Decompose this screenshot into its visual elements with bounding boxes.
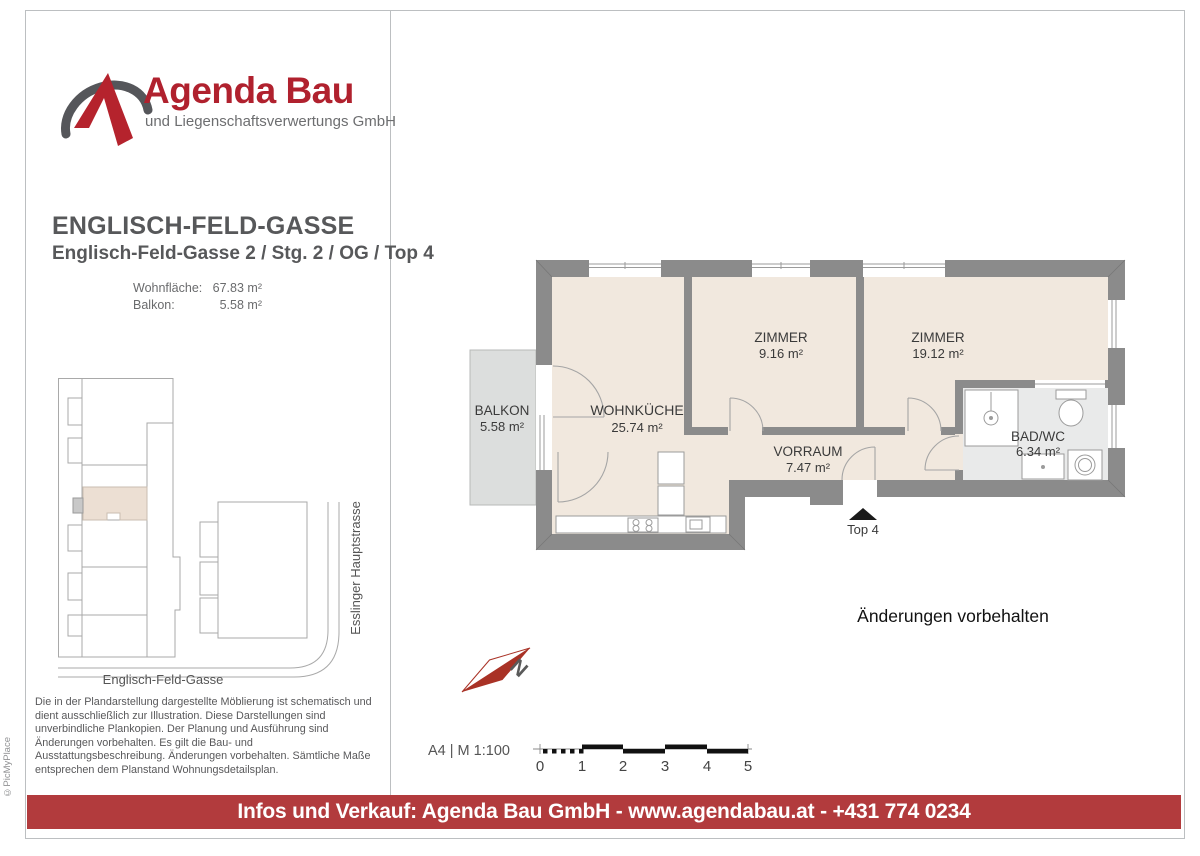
scale-tick: 3 — [661, 758, 669, 775]
site-connector — [147, 423, 180, 657]
room-area: 7.47 m² — [786, 460, 831, 475]
scale-tick: 5 — [744, 758, 752, 775]
room-label: VORRAUM — [773, 444, 842, 459]
room-area: 25.74 m² — [611, 420, 663, 435]
footer-bar: Infos und Verkauf: Agenda Bau GmbH - www… — [27, 795, 1181, 829]
site-road-outer — [58, 502, 339, 677]
floor-plan: BALKON 5.58 m² WOHNKÜCHE 25.74 m² ZIMMER… — [440, 250, 1140, 560]
brand-name: Agenda Bau — [143, 70, 354, 112]
entrance-arrow-icon — [849, 508, 877, 520]
kitchen-cabinet — [658, 452, 684, 484]
area-row-value: 67.83 m² — [192, 281, 262, 298]
street-label-bottom: Englisch-Feld-Gasse — [103, 672, 224, 687]
stove — [628, 518, 658, 532]
site-unit-balcony — [73, 498, 83, 513]
kitchen-cabinet — [658, 486, 684, 515]
toilet-tank — [1056, 390, 1086, 399]
scale-tick: 2 — [619, 758, 627, 775]
room-label: WOHNKÜCHE — [590, 401, 683, 418]
site-plan: Englisch-Feld-Gasse Esslinger Hauptstras… — [58, 378, 390, 690]
room-area: 6.34 m² — [1016, 444, 1061, 459]
site-road-inner — [58, 502, 328, 668]
room-label: BAD/WC — [1011, 429, 1065, 444]
changes-note: Änderungen vorbehalten — [823, 606, 1083, 627]
disclaimer-text: Die in der Plandarstellung dargestellte … — [35, 696, 380, 778]
room-label: BALKON — [475, 403, 530, 418]
entrance-label: Top 4 — [847, 522, 879, 537]
plan-sheet: Agenda Bau und Liegenschaftsverwertungs … — [0, 0, 1200, 856]
site-building-right — [218, 502, 307, 638]
north-arrow-icon: N — [450, 640, 545, 702]
scale-tick: 4 — [703, 758, 711, 775]
room-area: 19.12 m² — [912, 346, 964, 361]
brand-subtitle: und Liegenschaftsverwertungs GmbH — [145, 113, 396, 130]
scale-tick: 1 — [578, 758, 586, 775]
page-subtitle: Englisch-Feld-Gasse 2 / Stg. 2 / OG / To… — [52, 243, 434, 265]
room-label: ZIMMER — [911, 330, 964, 345]
room-label: ZIMMER — [754, 330, 807, 345]
footer-contact: Infos und Verkauf: Agenda Bau GmbH - www… — [27, 795, 1181, 829]
toilet — [1059, 400, 1083, 426]
scale-tick: 0 — [536, 758, 544, 775]
room-area: 5.58 m² — [480, 419, 525, 434]
room-area: 9.16 m² — [759, 346, 804, 361]
street-label-right: Esslinger Hauptstrasse — [348, 501, 363, 635]
page-title: ENGLISCH-FELD-GASSE — [52, 212, 354, 241]
area-row-value: 5.58 m² — [192, 298, 262, 315]
site-highlighted-unit — [83, 487, 147, 520]
scale-bar: A4 | M 1:100 0 1 2 3 4 5 — [420, 735, 760, 780]
scale-label: A4 | M 1:100 — [428, 743, 510, 759]
watermark: ©PicMyPlace — [2, 737, 13, 798]
